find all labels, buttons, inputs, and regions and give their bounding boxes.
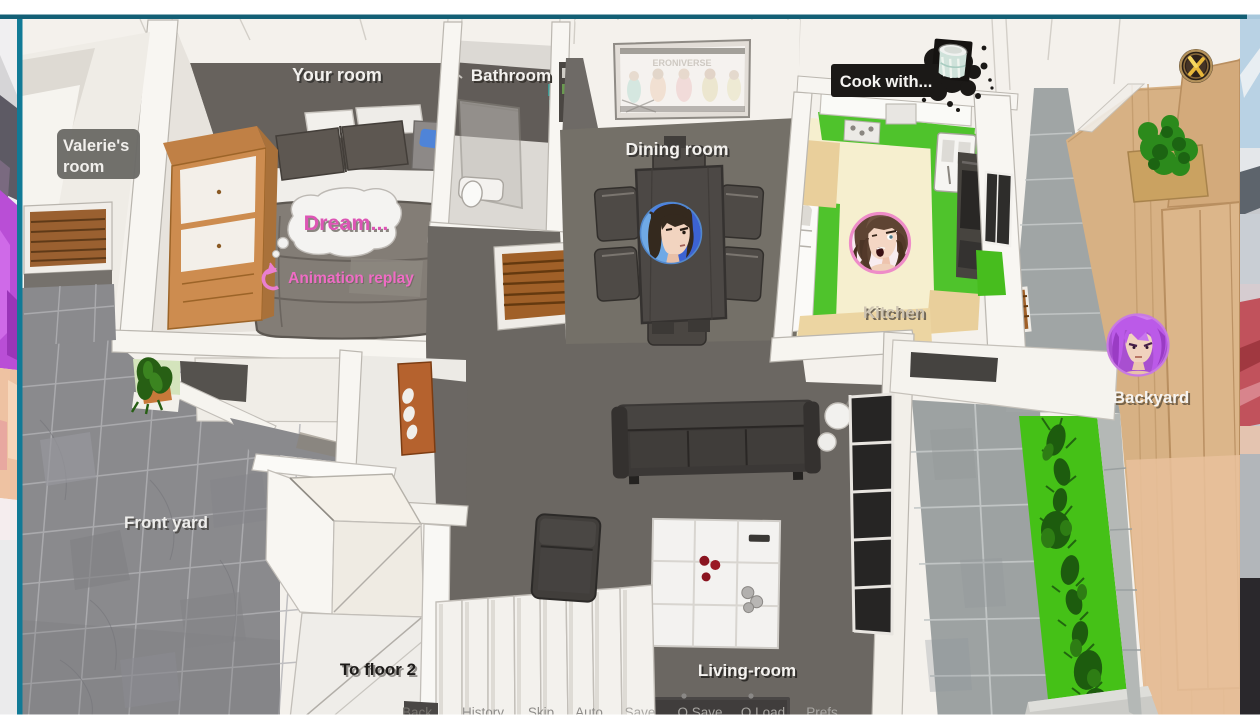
svg-text:Cook with...: Cook with... — [840, 73, 933, 91]
svg-text:Bathroom: Bathroom — [471, 66, 551, 85]
svg-text:To floor 2: To floor 2 — [340, 660, 416, 679]
svg-text:Living-room: Living-room — [698, 661, 796, 680]
svg-text:Dining room: Dining room — [625, 139, 728, 159]
svg-text:room: room — [63, 158, 104, 176]
svg-text:Dream...: Dream... — [304, 211, 389, 235]
svg-text:Animation replay: Animation replay — [288, 270, 414, 287]
svg-text:ERONIVERSE: ERONIVERSE — [652, 58, 711, 68]
svg-text:Front yard: Front yard — [124, 513, 208, 532]
svg-text:Your room: Your room — [292, 65, 382, 85]
svg-text:Kitchen: Kitchen — [863, 303, 925, 322]
svg-text:Backyard: Backyard — [1113, 388, 1190, 407]
svg-text:Valerie's: Valerie's — [63, 137, 129, 155]
